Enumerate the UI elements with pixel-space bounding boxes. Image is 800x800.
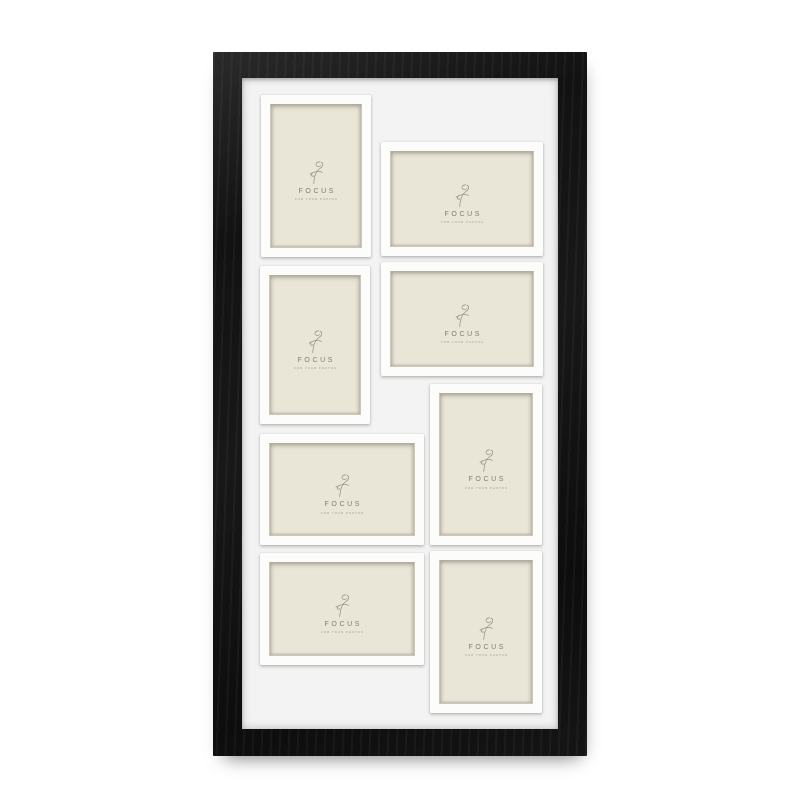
- script-f-icon: [454, 304, 470, 328]
- script-f-icon: [478, 449, 494, 473]
- insert-paper: FOCUS FOR YOUR PHOTOS: [439, 393, 533, 536]
- brand-name: FOCUS: [296, 357, 337, 364]
- brand-name: FOCUS: [297, 188, 338, 195]
- brand-logo: FOCUS FOR YOUR PHOTOS: [294, 161, 338, 202]
- brand-logo: FOCUS FOR YOUR PHOTOS: [440, 184, 484, 225]
- product-photo: FOCUS FOR YOUR PHOTOS: [0, 0, 800, 800]
- insert-paper: FOCUS FOR YOUR PHOTOS: [270, 104, 362, 248]
- brand-name: FOCUS: [467, 644, 508, 651]
- script-f-icon: [454, 184, 470, 208]
- insert-paper: FOCUS FOR YOUR PHOTOS: [269, 443, 415, 536]
- photo-slot-2: FOCUS FOR YOUR PHOTOS: [381, 142, 543, 256]
- brand-tagline: FOR YOUR PHOTOS: [321, 511, 364, 515]
- photo-slot-4: FOCUS FOR YOUR PHOTOS: [381, 262, 543, 376]
- brand-tagline: FOR YOUR PHOTOS: [465, 653, 508, 657]
- brand-tagline: FOR YOUR PHOTOS: [295, 197, 338, 201]
- brand-logo: FOCUS FOR YOUR PHOTOS: [320, 474, 364, 515]
- photo-slot-8: FOCUS FOR YOUR PHOTOS: [430, 551, 542, 713]
- insert-paper: FOCUS FOR YOUR PHOTOS: [269, 562, 415, 656]
- brand-logo: FOCUS FOR YOUR PHOTOS: [440, 304, 484, 345]
- brand-name: FOCUS: [443, 211, 484, 218]
- insert-paper: FOCUS FOR YOUR PHOTOS: [269, 275, 361, 415]
- brand-logo: FOCUS FOR YOUR PHOTOS: [320, 594, 364, 635]
- brand-tagline: FOR YOUR PHOTOS: [321, 630, 364, 634]
- brand-tagline: FOR YOUR PHOTOS: [441, 220, 484, 224]
- brand-name: FOCUS: [443, 331, 484, 338]
- photo-frame: FOCUS FOR YOUR PHOTOS: [213, 52, 587, 756]
- insert-paper: FOCUS FOR YOUR PHOTOS: [390, 151, 534, 247]
- brand-logo: FOCUS FOR YOUR PHOTOS: [464, 449, 508, 490]
- insert-paper: FOCUS FOR YOUR PHOTOS: [439, 560, 533, 704]
- brand-logo: FOCUS FOR YOUR PHOTOS: [464, 617, 508, 658]
- brand-tagline: FOR YOUR PHOTOS: [465, 486, 508, 490]
- brand-name: FOCUS: [323, 621, 364, 628]
- photo-slot-3: FOCUS FOR YOUR PHOTOS: [260, 266, 370, 424]
- insert-paper: FOCUS FOR YOUR PHOTOS: [390, 271, 534, 367]
- photo-slot-6: FOCUS FOR YOUR PHOTOS: [260, 434, 424, 545]
- brand-tagline: FOR YOUR PHOTOS: [441, 340, 484, 344]
- brand-name: FOCUS: [323, 501, 364, 508]
- script-f-icon: [307, 330, 323, 354]
- photo-slot-1: FOCUS FOR YOUR PHOTOS: [261, 95, 371, 257]
- brand-logo: FOCUS FOR YOUR PHOTOS: [293, 330, 337, 371]
- script-f-icon: [308, 161, 324, 185]
- brand-name: FOCUS: [467, 476, 508, 483]
- script-f-icon: [334, 474, 350, 498]
- script-f-icon: [478, 617, 494, 641]
- photo-slot-5: FOCUS FOR YOUR PHOTOS: [430, 384, 542, 545]
- script-f-icon: [334, 594, 350, 618]
- brand-tagline: FOR YOUR PHOTOS: [294, 366, 337, 370]
- photo-slot-7: FOCUS FOR YOUR PHOTOS: [260, 553, 424, 665]
- mat-board: FOCUS FOR YOUR PHOTOS: [242, 78, 558, 729]
